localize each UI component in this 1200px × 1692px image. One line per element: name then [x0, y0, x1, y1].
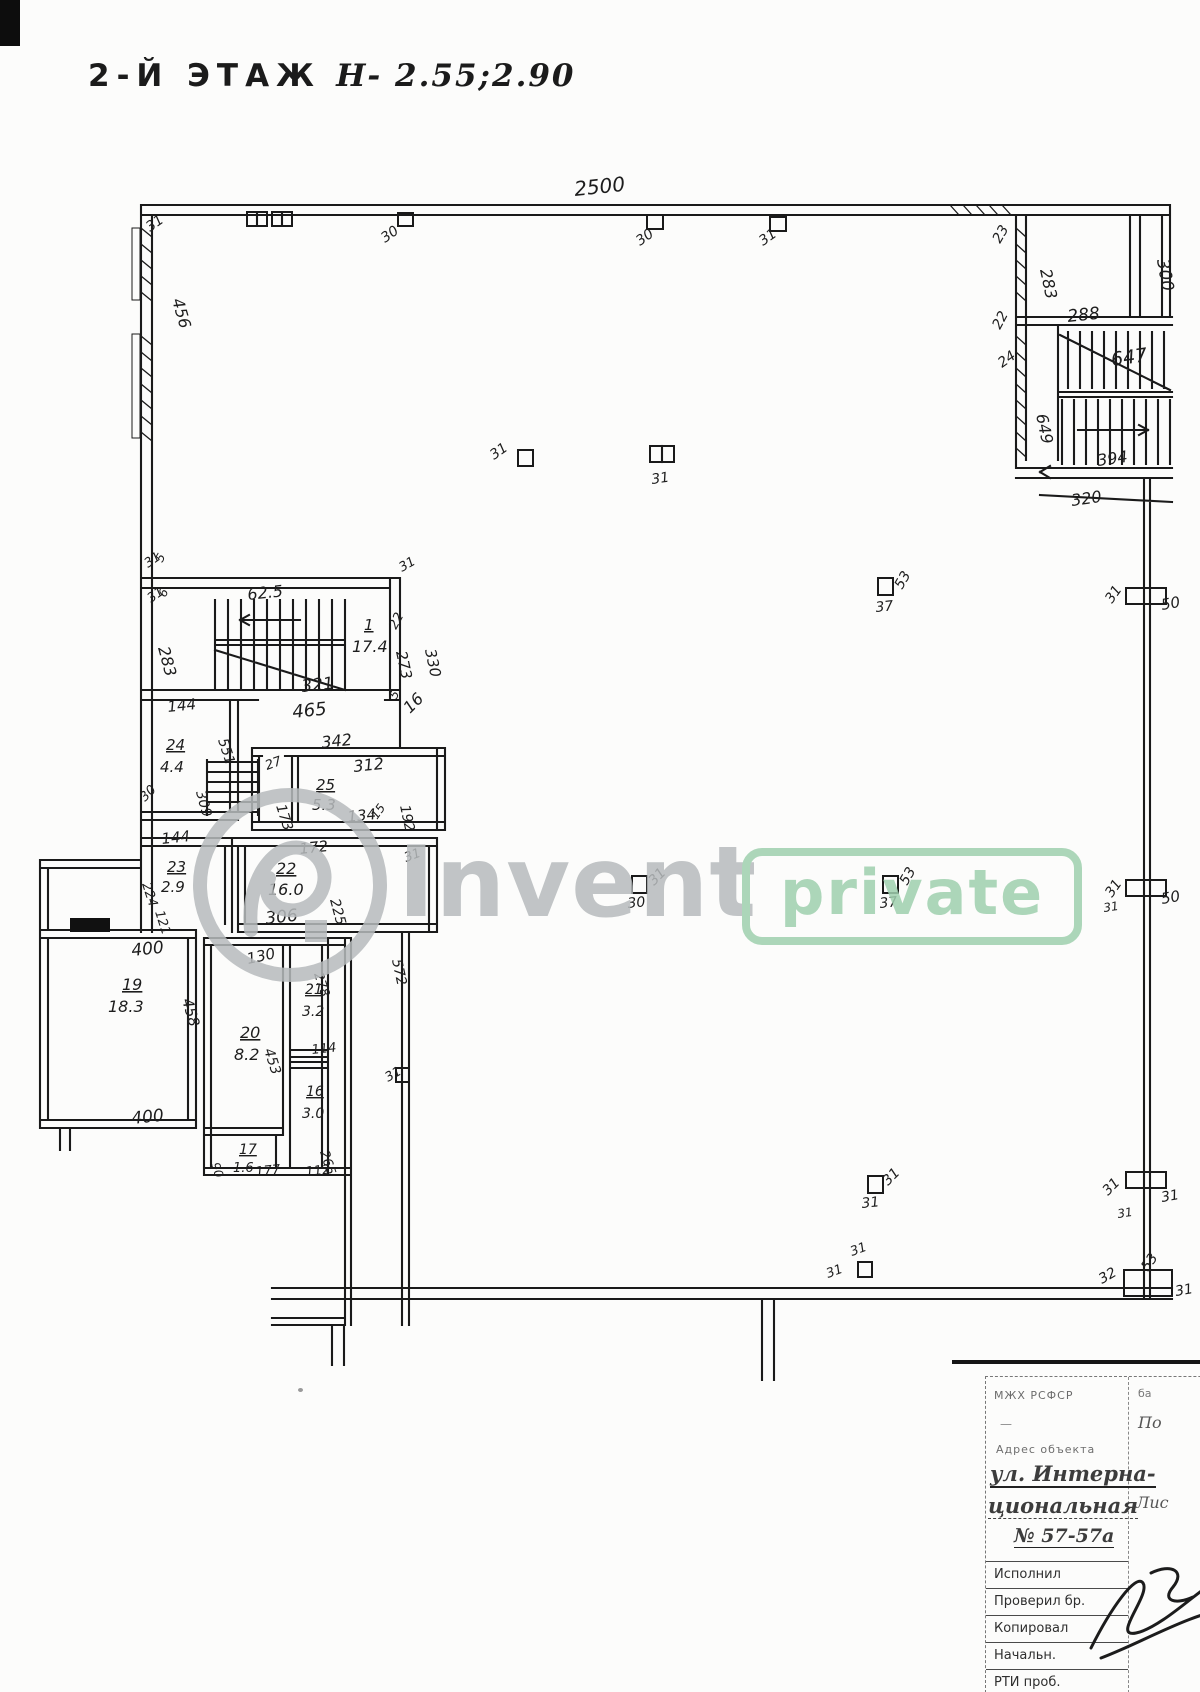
- plan-label: 31: [1102, 899, 1119, 915]
- plan-label: 31: [756, 226, 780, 249]
- plan-label: 5.3: [312, 796, 336, 814]
- plan-label: 31: [848, 1240, 869, 1260]
- walls-layer: [40, 205, 1172, 1380]
- plan-label: 144: [161, 827, 191, 848]
- plan-label: 31: [650, 470, 670, 488]
- plan-label: 22: [276, 859, 296, 878]
- plan-label: 453: [260, 1046, 283, 1076]
- window-hatch-layer: [132, 205, 1026, 457]
- plan-label: 456: [168, 296, 195, 331]
- plan-label: 394: [1096, 447, 1129, 470]
- plan-label: 31: [1100, 1175, 1124, 1199]
- plan-label: 23: [990, 223, 1013, 246]
- plan-label: 31: [1102, 583, 1125, 607]
- plan-label: 130: [245, 944, 277, 968]
- plan-label: 30: [627, 894, 646, 912]
- plan-label: 283: [1036, 267, 1061, 301]
- plan-label: 19: [122, 975, 142, 994]
- plan-label: 31: [861, 1194, 880, 1212]
- plan-label: 23: [167, 858, 186, 876]
- plan-label: 53: [892, 569, 915, 592]
- address-line-3: № 57-57а: [1014, 1525, 1114, 1548]
- plan-label: 22: [989, 309, 1012, 332]
- plan-label: 31: [487, 440, 511, 463]
- plan-label: 37: [875, 598, 894, 616]
- plan-label: 3.2: [302, 1004, 324, 1020]
- plan-label: 18.3: [108, 997, 144, 1016]
- plan-label: 24: [166, 736, 185, 754]
- plan-label: 121: [151, 909, 173, 937]
- plan-label: 50: [1160, 887, 1182, 908]
- plan-label: 342: [320, 730, 352, 752]
- plan-label: 62.5: [246, 581, 283, 604]
- solid-fills-layer: [70, 918, 110, 932]
- plan-label: 90: [208, 1161, 226, 1180]
- plan-label: 37: [879, 894, 898, 912]
- plan-label: 144: [167, 695, 197, 716]
- plan-label: 458: [178, 996, 203, 1028]
- plan-label: 321: [300, 674, 334, 697]
- plan-label: 8.2: [234, 1045, 259, 1064]
- plan-label: 31: [1102, 877, 1125, 901]
- signature: [1081, 1553, 1200, 1673]
- plan-label: 31: [397, 554, 419, 575]
- plan-label: 16: [399, 689, 427, 717]
- plan-label: 572: [388, 958, 409, 988]
- plan-label: 192: [396, 804, 417, 834]
- plan-label: 17.4: [352, 637, 388, 656]
- plan-label: 225: [326, 897, 348, 927]
- plan-label: 32: [1096, 1265, 1120, 1288]
- plan-label: 27: [263, 754, 284, 774]
- plan-label: 31: [402, 846, 423, 866]
- plan-label: 649: [1032, 412, 1057, 446]
- title-block: МЖХ РСФСР — ба По Адрес объекта ул. Инте…: [985, 1376, 1200, 1692]
- address-label: Адрес объекта: [996, 1443, 1095, 1456]
- plan-label: 400: [130, 1106, 164, 1129]
- corner-note-text: По: [1138, 1413, 1162, 1432]
- plan-label: 465: [291, 698, 327, 722]
- plan-label: 283: [154, 644, 180, 678]
- address-line-2: циональная: [988, 1493, 1138, 1519]
- plan-label: 177: [255, 1162, 282, 1180]
- plan-label: 31: [1174, 1281, 1194, 1300]
- plan-label: 647: [1110, 344, 1149, 371]
- plan-label: 25: [316, 776, 335, 794]
- plan-label: 2500: [573, 172, 626, 201]
- plan-label: 114: [311, 1040, 337, 1058]
- plan-label: 330: [421, 647, 445, 679]
- plan-label: 306: [264, 906, 299, 929]
- plan-label: 31: [1160, 1187, 1180, 1206]
- plan-label: 172: [299, 837, 329, 858]
- plan-label: 320: [1070, 487, 1103, 510]
- plan-label: 53: [897, 865, 920, 888]
- plan-label: 3.0: [302, 1106, 324, 1122]
- plan-label: 1.6: [233, 1161, 254, 1176]
- plan-label: 31: [646, 865, 670, 889]
- labels-layer: 2500313030312345628328830022246476493943…: [108, 172, 1194, 1300]
- plan-label: 400: [130, 938, 164, 961]
- plan-label: 16: [306, 1084, 324, 1100]
- columns-layer: [247, 212, 1172, 1296]
- plan-label: 17: [239, 1142, 257, 1158]
- plan-label: 288: [1066, 304, 1101, 327]
- sheet-label: Лис: [1136, 1493, 1169, 1512]
- address-line-1: ул. Интерна-: [990, 1461, 1156, 1488]
- corner-top-text: ба: [1138, 1387, 1152, 1400]
- plan-label: 112: [305, 1162, 331, 1180]
- plan-label: 4.4: [160, 758, 184, 776]
- plan-label: 309: [192, 789, 214, 819]
- floor-plan-scan: 2-Й ЭТАЖ Н- 2.55;2.90: [0, 0, 1200, 1692]
- org-dash: —: [1000, 1417, 1012, 1431]
- plan-label: 2.9: [161, 878, 185, 896]
- plan-label: 1: [364, 616, 374, 634]
- plan-label: 21: [305, 982, 323, 998]
- org-name: МЖХ РСФСР: [994, 1389, 1124, 1402]
- plan-label: 273: [392, 649, 416, 681]
- plan-label: 50: [1160, 593, 1182, 614]
- plan-label: 31: [824, 1262, 845, 1282]
- plan-label: 31: [1116, 1205, 1133, 1221]
- plan-label: 312: [352, 754, 384, 776]
- plan-label: 20: [240, 1023, 260, 1042]
- plan-label: 300: [1152, 257, 1177, 292]
- plan-label: 16.0: [268, 880, 304, 899]
